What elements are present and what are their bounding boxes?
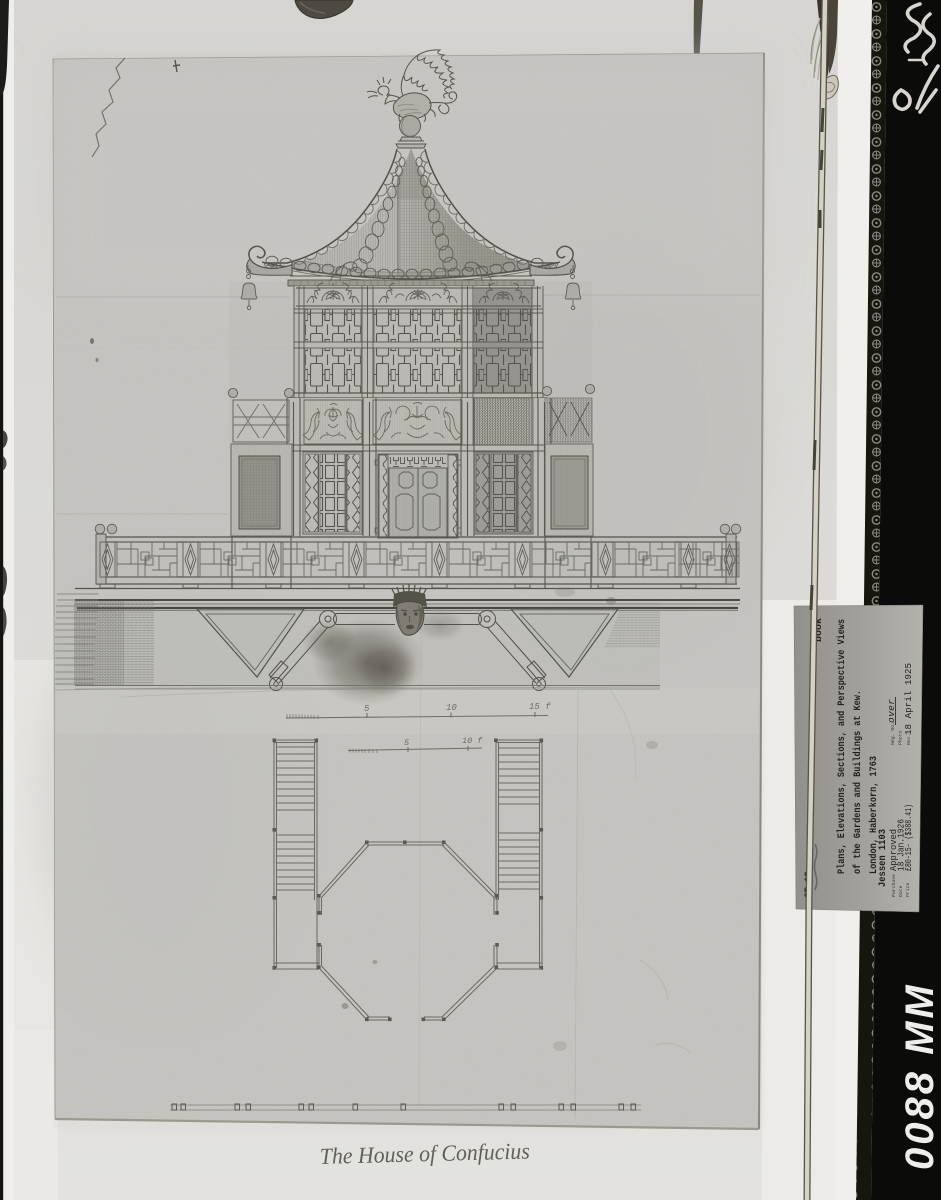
- svg-text:10 f: 10 f: [462, 736, 483, 746]
- svg-text:10: 10: [446, 703, 457, 713]
- svg-text:£80-15- ($388.41): £80-15- ($388.41): [903, 804, 914, 871]
- svg-text:Date: Date: [898, 885, 904, 897]
- svg-text:Purchase: Purchase: [891, 874, 897, 897]
- svg-text:18 April 1925: 18 April 1925: [903, 663, 914, 735]
- svg-text:Neg. No.: Neg. No.: [890, 722, 896, 745]
- svg-text:Price: Price: [905, 882, 911, 897]
- svg-text:of the Gardens and Buildings a: of the Gardens and Buildings at Kew.: [852, 690, 863, 874]
- svg-text:0088 MM: 0088 MM: [898, 982, 941, 1170]
- svg-text:15 f: 15 f: [529, 702, 551, 712]
- svg-text:5: 5: [404, 738, 409, 748]
- svg-text:5: 5: [364, 704, 370, 714]
- svg-text:Plans, Elevations, Sections, a: Plans, Elevations, Sections, and Perspec…: [836, 619, 847, 874]
